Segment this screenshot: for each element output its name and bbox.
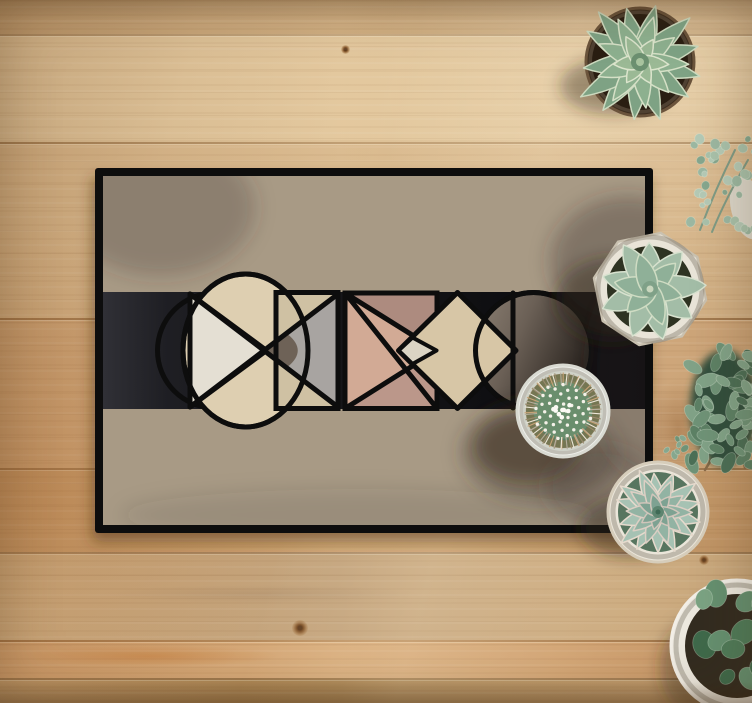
succulent-echeveria-top: [560, 3, 702, 122]
eucalyptus-sprigs: [685, 132, 752, 243]
bean-succulent: [681, 340, 752, 476]
jade-plant: [660, 579, 752, 703]
scene: [0, 0, 752, 703]
scene-svg: [0, 0, 752, 703]
